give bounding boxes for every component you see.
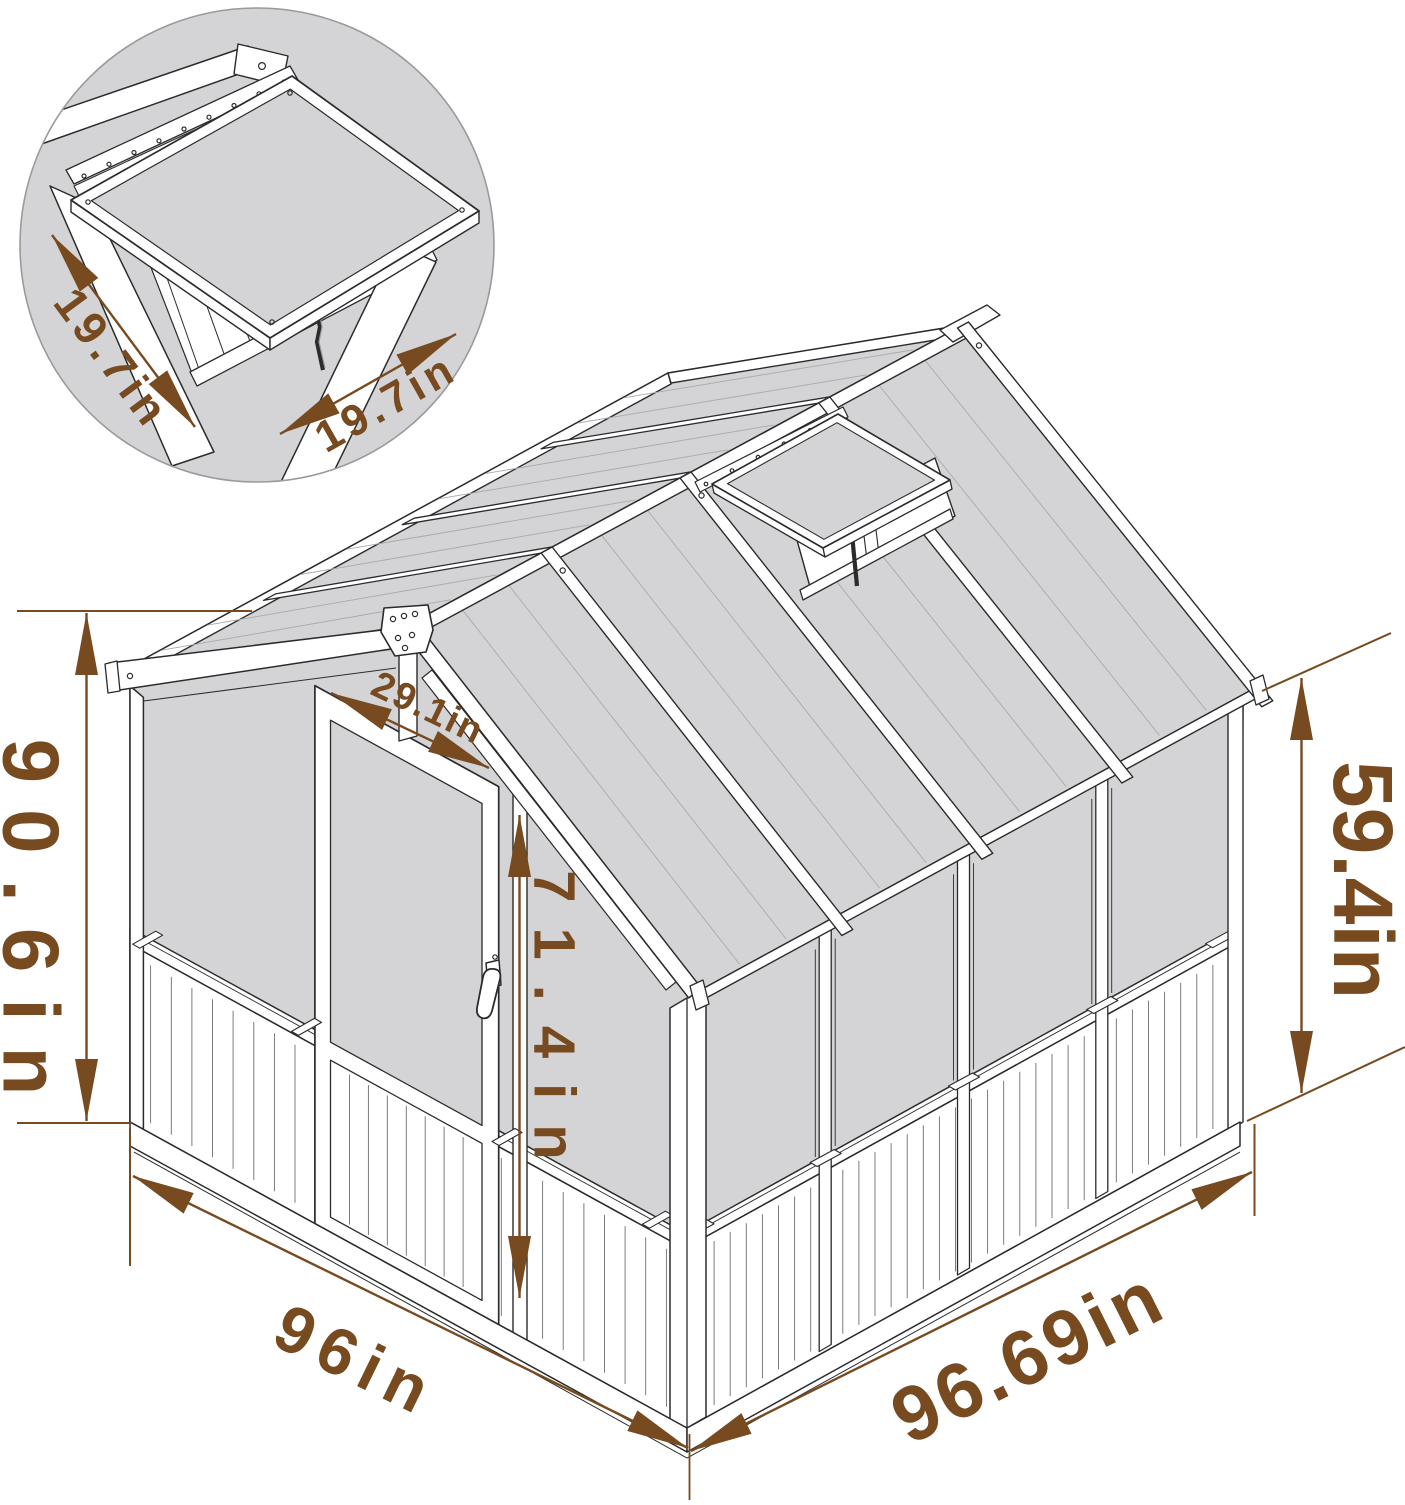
svg-text:71.4in: 71.4in [522,870,587,1184]
svg-text:59.4in: 59.4in [1316,761,1405,999]
svg-text:90.6in: 90.6in [0,739,76,1122]
